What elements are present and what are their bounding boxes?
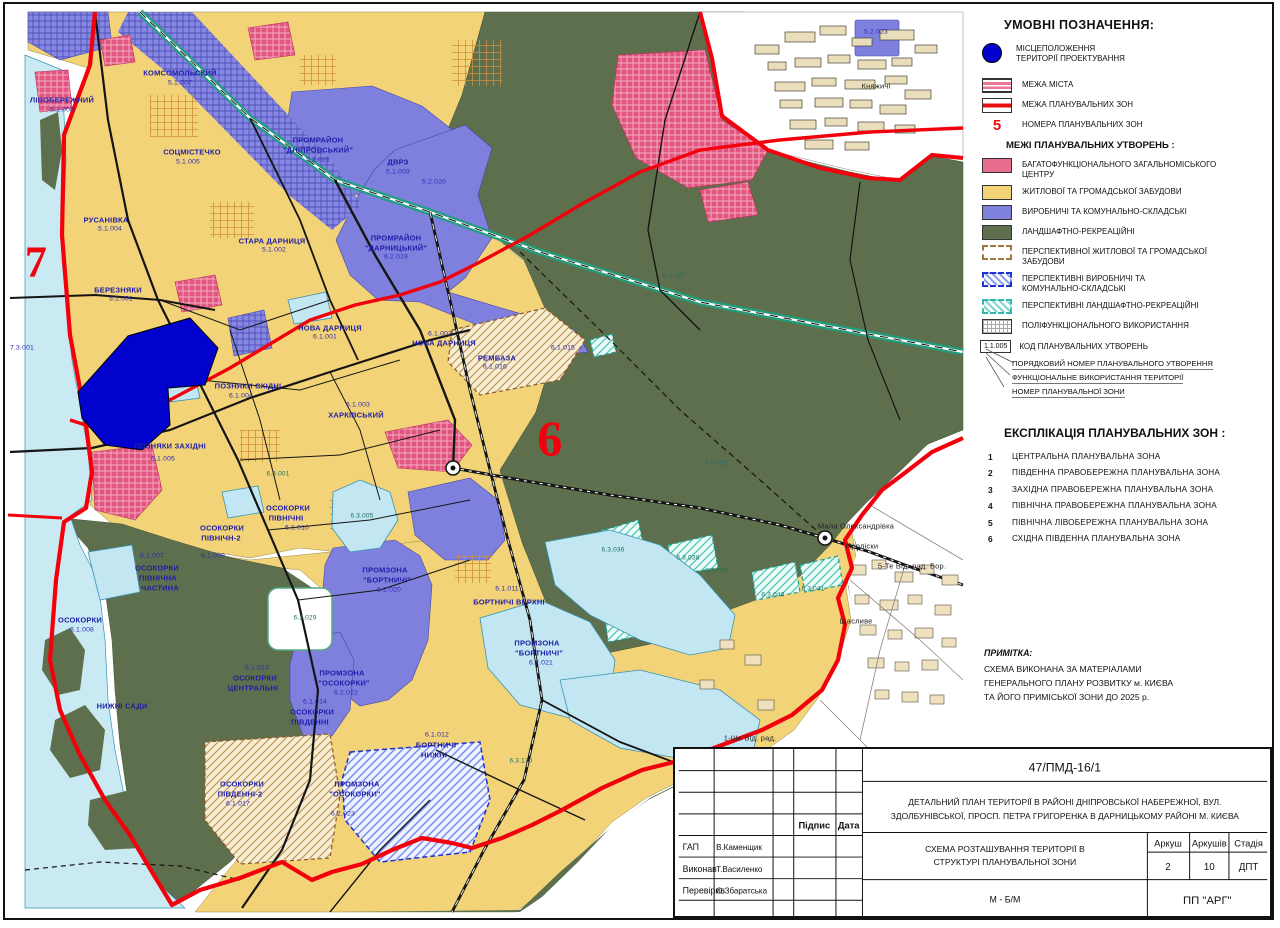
note-line: ГЕНЕРАЛЬНОГО ПЛАНУ РОЗВИТКУ м. КИЄВА <box>984 677 1276 691</box>
swatch-dash-blue-icon <box>982 272 1012 287</box>
note-block: ПРИМІТКА: СХЕМА ВИКОНАНА ЗА МАТЕРІАЛАМИГ… <box>984 648 1276 704</box>
zone-row: 5ПІВНІЧНА ЛІВОБЕРЕЖНА ПЛАНУВАЛЬНА ЗОНА <box>988 518 1270 528</box>
legend-location-item: МІСЦЕПОЛОЖЕННЯ ТЕРИТОРІЇ ПРОЕКТУВАННЯ <box>982 42 1270 64</box>
company-name: ПП "АРГ" <box>1183 895 1232 907</box>
note-line: СХЕМА ВИКОНАНА ЗА МАТЕРІАЛАМИ <box>984 663 1276 677</box>
sheet-title-line2: СТРУКТУРІ ПЛАНУВАЛЬНОЇ ЗОНИ <box>934 857 1077 867</box>
swatch-dash-tan-icon <box>982 245 1012 260</box>
zone-label: ПІВНІЧНА ПРАВОБЕРЕЖНА ПЛАНУВАЛЬНА ЗОНА <box>1012 501 1217 511</box>
plan-sheet: { "legend": { "title": "УМОВНІ ПОЗНАЧЕНН… <box>0 0 1280 928</box>
city-border-swatch-icon <box>982 78 1012 93</box>
legend-zone-border-item: МЕЖА ПЛАНУВАЛЬНИХ ЗОН <box>982 98 1270 113</box>
formation-label: ЖИТЛОВОЇ ТА ГРОМАДСЬКОЇ ЗАБУДОВИ <box>1022 185 1182 197</box>
zone-border-swatch-icon <box>982 98 1012 113</box>
site-location-icon <box>982 43 1002 63</box>
note-title: ПРИМІТКА: <box>984 648 1276 658</box>
zone-row: 2ПІВДЕННА ПРАВОБЕРЕЖНА ПЛАНУВАЛЬНА ЗОНА <box>988 468 1270 478</box>
stage-value: ДПТ <box>1239 862 1259 873</box>
legend-panel: УМОВНІ ПОЗНАЧЕННЯ: МІСЦЕПОЛОЖЕННЯ ТЕРИТО… <box>978 8 1272 743</box>
formation-item: ЖИТЛОВОЇ ТА ГРОМАДСЬКОЇ ЗАБУДОВИ <box>982 185 1270 200</box>
swatch-purple-icon <box>982 205 1012 220</box>
zone-label: ПІВДЕННА ПРАВОБЕРЕЖНА ПЛАНУВАЛЬНА ЗОНА <box>1012 468 1220 478</box>
date-col-header: Дата <box>838 821 860 831</box>
code-callout: ФУНКЦІОНАЛЬНЕ ВИКОРИСТАННЯ ТЕРИТОРІЇ <box>1012 373 1183 384</box>
formation-item: ВИРОБНИЧІ ТА КОМУНАЛЬНО-СКЛАДСЬКІ <box>982 205 1270 220</box>
zone-number: 3 <box>988 485 1012 495</box>
role-gap: ГАП <box>683 842 699 852</box>
stage-label: Стадія <box>1234 838 1263 848</box>
swatch-pink-icon <box>982 158 1012 173</box>
sheet-title-line1: СХЕМА РОЗТАШУВАННЯ ТЕРИТОРІЇ В <box>925 844 1085 854</box>
formation-item: ПЕРСПЕКТИВНОЇ ЖИТЛОВОЇ ТА ГРОМАДСЬКОЇЗАБ… <box>982 245 1270 267</box>
code-example-row: 1.1.005 КОД ПЛАНУВАЛЬНИХ УТВОРЕНЬ <box>980 340 1270 353</box>
zone-number: 2 <box>988 468 1012 478</box>
code-example-label: КОД ПЛАНУВАЛЬНИХ УТВОРЕНЬ <box>1019 342 1148 351</box>
zone-label: ЗАХІДНА ПРАВОБЕРЕЖНА ПЛАНУВАЛЬНА ЗОНА <box>1012 485 1213 495</box>
swatch-dash-teal-icon <box>982 299 1012 314</box>
sheets-label: Аркушів <box>1192 838 1227 848</box>
doc-number: 47/ПМД-16/1 <box>1029 761 1102 775</box>
zone-row: 1ЦЕНТРАЛЬНА ПЛАНУВАЛЬНА ЗОНА <box>988 452 1270 462</box>
legend-title: УМОВНІ ПОЗНАЧЕННЯ: <box>1004 18 1270 32</box>
callout-leader-lines <box>984 347 1014 391</box>
formation-label: ПЕРСПЕКТИВНОЇ ЖИТЛОВОЇ ТА ГРОМАДСЬКОЇЗАБ… <box>1022 245 1207 267</box>
location-label-line1: МІСЦЕПОЛОЖЕННЯ <box>1016 44 1125 54</box>
name-gap: В.Каменщик <box>716 843 762 852</box>
location-label-line2: ТЕРИТОРІЇ ПРОЕКТУВАННЯ <box>1016 54 1125 64</box>
title-block: Підпис Дата ГАП В.Каменщик Виконав Т.Вас… <box>673 747 1272 918</box>
formation-label: БАГАТОФУНКЦІОНАЛЬНОГО ЗАГАЛЬНОМІСЬКОГОЦЕ… <box>1022 158 1216 180</box>
city-border-label: МЕЖА МІСТА <box>1022 78 1073 90</box>
swatch-yellow-icon <box>982 185 1012 200</box>
legend-symbols-block: УМОВНІ ПОЗНАЧЕННЯ: МІСЦЕПОЛОЖЕННЯ ТЕРИТО… <box>978 14 1270 138</box>
zone-number-symbol: 5 <box>982 118 1012 133</box>
legend-city-border-item: МЕЖА МІСТА <box>982 78 1270 93</box>
zone-label: ПІВНІЧНА ЛІВОБЕРЕЖНА ПЛАНУВАЛЬНА ЗОНА <box>1012 518 1208 528</box>
explication-title: ЕКСПЛІКАЦІЯ ПЛАНУВАЛЬНИХ ЗОН : <box>1004 426 1270 440</box>
zone-number: 6 <box>988 534 1012 544</box>
formation-item: ПЕРСПЕКТИВНІ ЛАНДШАФТНО-РЕКРЕАЦІЙНІ <box>982 299 1270 314</box>
formation-label: ЛАНДШАФТНО-РЕКРЕАЦІЙНІ <box>1022 225 1135 237</box>
zone-row: 3ЗАХІДНА ПРАВОБЕРЕЖНА ПЛАНУВАЛЬНА ЗОНА <box>988 485 1270 495</box>
project-title-line2: ЗДОЛБУНІВСЬКОЇ, ПРОСП. ПЕТРА ГРИГОРЕНКА … <box>891 810 1240 821</box>
zone-label: СХІДНА ПІВДЕННА ПЛАНУВАЛЬНА ЗОНА <box>1012 534 1180 544</box>
formation-item: ЛАНДШАФТНО-РЕКРЕАЦІЙНІ <box>982 225 1270 240</box>
swatch-green-icon <box>982 225 1012 240</box>
formation-item: ПЕРСПЕКТИВНІ ВИРОБНИЧІ ТАКОМУНАЛЬНО-СКЛА… <box>982 272 1270 294</box>
code-callout: НОМЕР ПЛАНУВАЛЬНОЇ ЗОНИ <box>1012 387 1125 398</box>
zone-row: 4ПІВНІЧНА ПРАВОБЕРЕЖНА ПЛАНУВАЛЬНА ЗОНА <box>988 501 1270 511</box>
formation-item: БАГАТОФУНКЦІОНАЛЬНОГО ЗАГАЛЬНОМІСЬКОГОЦЕ… <box>982 158 1270 180</box>
code-callouts: ПОРЯДКОВИЙ НОМЕР ПЛАНУВАЛЬНОГО УТВОРЕННЯ… <box>1012 359 1270 398</box>
name-checker: О.Збаратська <box>716 886 768 895</box>
legend-zone-number-item: 5 НОМЕРА ПЛАНУВАЛЬНИХ ЗОН <box>982 118 1270 133</box>
zone-label: ЦЕНТРАЛЬНА ПЛАНУВАЛЬНА ЗОНА <box>1012 452 1160 462</box>
formation-label: ПЕРСПЕКТИВНІ ЛАНДШАФТНО-РЕКРЕАЦІЙНІ <box>1022 299 1199 311</box>
scale-value: М - Б/М <box>990 894 1021 904</box>
zone-row: 6СХІДНА ПІВДЕННА ПЛАНУВАЛЬНА ЗОНА <box>988 534 1270 544</box>
zone-number-label: НОМЕРА ПЛАНУВАЛЬНИХ ЗОН <box>1022 118 1142 130</box>
zone-border-label: МЕЖА ПЛАНУВАЛЬНИХ ЗОН <box>1022 98 1133 110</box>
zone-number: 5 <box>988 518 1012 528</box>
title-block-grid: Підпис Дата ГАП В.Каменщик Виконав Т.Вас… <box>675 749 1271 917</box>
sheet-label: Аркуш <box>1154 838 1182 848</box>
zone-number: 1 <box>988 452 1012 462</box>
formations-block: МЕЖІ ПЛАНУВАЛЬНИХ УТВОРЕНЬ : БАГАТОФУНКЦ… <box>978 140 1270 401</box>
project-title-line1: ДЕТАЛЬНИЙ ПЛАН ТЕРИТОРІЇ В РАЙОНІ ДНІПРО… <box>908 796 1221 807</box>
code-callout: ПОРЯДКОВИЙ НОМЕР ПЛАНУВАЛЬНОГО УТВОРЕННЯ <box>1012 359 1213 370</box>
formation-label: ПЕРСПЕКТИВНІ ВИРОБНИЧІ ТАКОМУНАЛЬНО-СКЛА… <box>1022 272 1145 294</box>
formations-title: МЕЖІ ПЛАНУВАЛЬНИХ УТВОРЕНЬ : <box>1006 140 1270 151</box>
swatch-grid-icon <box>982 319 1012 334</box>
formation-item: ПОЛІФУНКЦІОНАЛЬНОГО ВИКОРИСТАННЯ <box>982 319 1270 334</box>
role-executor: Виконав <box>683 864 717 874</box>
explication-block: ЕКСПЛІКАЦІЯ ПЛАНУВАЛЬНИХ ЗОН : 1ЦЕНТРАЛЬ… <box>978 426 1270 550</box>
sheets-value: 10 <box>1204 862 1215 873</box>
zone-number: 4 <box>988 501 1012 511</box>
note-line: ТА ЙОГО ПРИМІСЬКОЇ ЗОНИ ДО 2025 р. <box>984 691 1276 705</box>
formation-label: ВИРОБНИЧІ ТА КОМУНАЛЬНО-СКЛАДСЬКІ <box>1022 205 1187 217</box>
sheet-value: 2 <box>1165 862 1170 873</box>
signature-col-header: Підпис <box>798 821 830 831</box>
formation-label: ПОЛІФУНКЦІОНАЛЬНОГО ВИКОРИСТАННЯ <box>1022 319 1189 331</box>
name-executor: Т.Василенко <box>716 865 763 874</box>
